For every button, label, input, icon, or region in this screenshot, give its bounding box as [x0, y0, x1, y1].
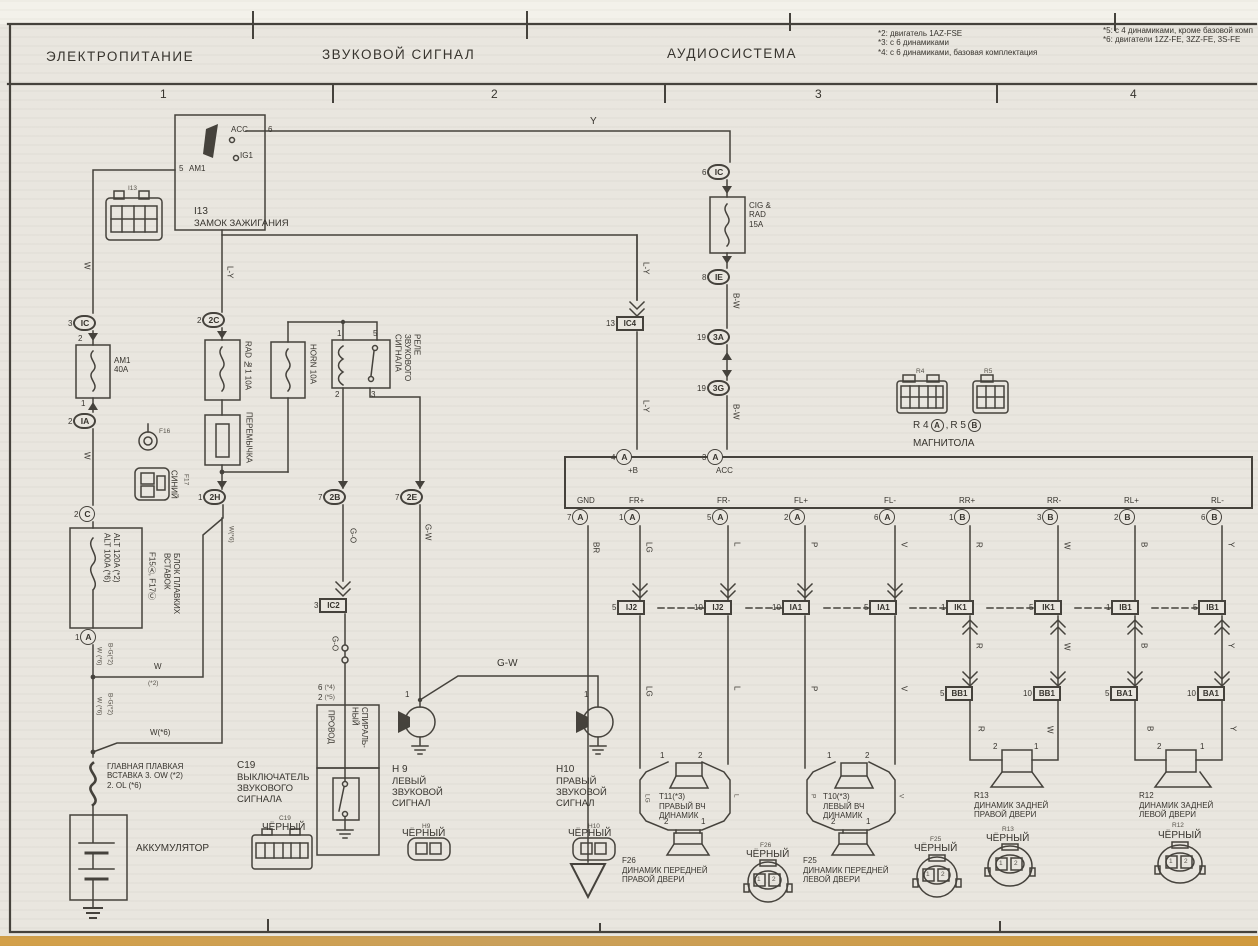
fuse-horn-label: HORN 10A [308, 344, 317, 384]
battery-icon [70, 815, 127, 908]
wire-label-r-1: R [974, 542, 983, 548]
connector-tag-i13: I13 [128, 185, 137, 193]
t11-wire-lg: LG [643, 794, 651, 803]
junction-ba1-5: 5BA1 [1105, 686, 1138, 701]
connector-ic2: 3IC2 [314, 598, 347, 613]
connector-ic-left: 3IC [68, 315, 96, 331]
wire-label-b-2: B [1139, 643, 1148, 648]
wire-label-n2-branch: (*2) [148, 680, 158, 688]
ignition-pin-5: 5 [179, 164, 183, 173]
wire-label-l-1: L [732, 542, 741, 546]
r13-pin-2: 2 [993, 742, 997, 751]
fuse-cig-rad-icon [710, 197, 745, 253]
wire-label-w2: W [82, 452, 91, 460]
speaker-rear-left-icon [1155, 750, 1211, 787]
connector-tag-r5: R5 [984, 368, 992, 376]
section-title-audio: АУДИОСИСТЕМА [667, 46, 797, 62]
page-bottom-edge [0, 936, 1258, 946]
ignition-pin-6: 6 [268, 125, 272, 134]
t11-pin-2: 2 [698, 751, 702, 760]
connector-tag-f16: F16 [159, 428, 170, 436]
fuse-pin-2: 2 [78, 334, 82, 343]
horn-h10-pin: 1 [584, 690, 588, 699]
r13-conn-pin2: 2 [1014, 860, 1018, 868]
wire-label-w-rr3: W [1045, 726, 1054, 734]
jumper-icon [205, 415, 240, 465]
wire-label-r-2: R [974, 643, 983, 649]
junction-ib1-5: 5IB1 [1193, 600, 1226, 615]
footnotes-right: *5: с 4 динамиками, кроме базовой комп *… [1103, 26, 1253, 45]
wire-label-w6-2h: W(*6) [227, 526, 235, 543]
r13-name: ДИНАМИК ЗАДНЕЙ ПРАВОЙ ДВЕРИ [974, 801, 1048, 820]
wire-label-l-2: L [732, 686, 741, 690]
section-title-power: ЭЛЕКТРОПИТАНИЕ [46, 49, 194, 65]
head-unit-box [565, 457, 1252, 508]
f25-conn-pin1: 1 [926, 871, 930, 879]
wire-label-v-1: V [899, 542, 908, 547]
f25-conn-pin2: 2 [941, 871, 945, 879]
spiral-wire-label-right: СПИРАЛЬ- НЫЙ [350, 707, 369, 748]
terminal-rlm-label: RL- [1211, 496, 1224, 505]
connector-f16-icon [139, 424, 157, 450]
wire-label-b-1: B [1139, 542, 1148, 547]
relay-pin-2: 2 [335, 390, 339, 399]
wire-label-r-3: R [976, 726, 985, 732]
terminal-frp-label: FR+ [629, 496, 644, 505]
ignition-switch-icon [175, 115, 265, 235]
connector-h10-icon [573, 838, 615, 860]
f26-name: ДИНАМИК ПЕРЕДНЕЙ ПРАВОЙ ДВЕРИ [622, 866, 708, 885]
terminal-frm-label: FR- [717, 496, 730, 505]
t11-id: T11(*3) [659, 792, 685, 801]
relay-pin-3: 3 [371, 390, 375, 399]
r13-pin-1: 1 [1034, 742, 1038, 751]
head-unit-name: МАГНИТОЛА [913, 438, 974, 450]
t10-wire-v: V [897, 794, 905, 798]
terminal-rrm: 3B [1037, 509, 1058, 525]
connector-r12-icon [1155, 842, 1205, 883]
wire-label-go-2: G-O [330, 636, 339, 651]
horn-left-icon [398, 707, 435, 754]
main-fusible-link-icon [90, 763, 95, 815]
speaker-rear-right-icon [991, 750, 1043, 787]
horn-switch-name: ВЫКЛЮЧАТЕЛЬ ЗВУКОВОГО СИГНАЛА [237, 772, 309, 806]
terminal-flm: 6A [874, 509, 895, 525]
wire-gw [420, 505, 598, 707]
connector-ia: 2IA [68, 413, 96, 429]
horn-h10-id: H10 [556, 764, 574, 776]
r12-conn-pin1: 1 [1169, 858, 1173, 866]
connector-c: 2C [74, 506, 95, 522]
r13-id: R13 [974, 791, 989, 800]
head-unit-connectors-label: R 4A , R 5B [913, 419, 981, 432]
terminal-rlm: 6B [1201, 509, 1222, 525]
junction-ij2-10: 10IJ2 [694, 600, 732, 615]
connector-tag-f17: F17 [182, 474, 190, 485]
fuse-rad-label: RAD №1 10A [243, 341, 252, 390]
wire-ly-left [222, 235, 637, 340]
junction-ia1-5: 5IA1 [864, 600, 897, 615]
junction-ij2-5: 5IJ2 [612, 600, 645, 615]
terminal-rrm-label: RR- [1047, 496, 1061, 505]
connector-2h: 12H [198, 489, 226, 505]
terminal-plus-b-label: +B [628, 466, 638, 475]
wire-label-lg-2: LG [644, 686, 653, 697]
wire-label-br: BR [591, 542, 600, 553]
connector-2b: 72B [318, 489, 346, 505]
connector-3a: 193A [697, 329, 730, 345]
connector-r13-icon [985, 844, 1035, 886]
terminal-frm: 5A [707, 509, 728, 525]
r12-pin-2: 2 [1157, 742, 1161, 751]
fusible-links-f15-f17: F15Ⓐ, F17Ⓒ [147, 552, 156, 600]
t10-name: ЛЕВЫЙ ВЧ ДИНАМИК [823, 802, 864, 821]
terminal-acc-label: ACC [716, 466, 733, 475]
wire-label-bg2-2: B-G(*2) [106, 693, 114, 715]
terminal-rlp-label: RL+ [1124, 496, 1139, 505]
horn-h10-name: ПРАВЫЙ ЗВУКОВОЙ СИГНАЛ [556, 776, 607, 810]
terminal-flp: 2A [784, 509, 805, 525]
junction-ik1-1: 1IK1 [941, 600, 974, 615]
wire-label-w-rr: W [1062, 542, 1071, 550]
f26-conn-pin1: 1 [757, 876, 761, 884]
t10-id: T10(*3) [823, 792, 850, 801]
t10-wire-p: P [809, 794, 817, 798]
connector-r13-color: ЧЁРНЫЙ [986, 833, 1029, 845]
wire-label-lg-1: LG [644, 542, 653, 553]
wire-label-bw-2: B-W [731, 404, 740, 420]
section-title-horn: ЗВУКОВОЙ СИГНАЛ [322, 47, 475, 63]
r12-id: R12 [1139, 791, 1154, 800]
wire-label-y-rl2: Y [1226, 643, 1235, 648]
wire-label-w6s-2: W (*6) [95, 697, 103, 715]
horn-right-icon [576, 707, 613, 754]
t10-pin-1: 1 [827, 751, 831, 760]
connector-i13-icon [106, 191, 162, 240]
main-fusible-link-label: ГЛАВНАЯ ПЛАВКАЯ ВСТАВКА 3. OW (*2) 2. OL… [107, 762, 183, 790]
connector-f17-icon [135, 468, 169, 500]
wire-label-ly-left: L-Y [225, 266, 234, 278]
connector-f25-color: ЧЁРНЫЙ [914, 843, 957, 855]
connector-r4-icon [897, 375, 947, 413]
wire-label-b-3: B [1145, 726, 1154, 731]
connector-c19-icon [252, 829, 312, 869]
wire-label-p-1: P [809, 542, 818, 547]
ignition-name: ЗАМОК ЗАЖИГАНИЯ [194, 218, 289, 229]
wire-label-ly-audio-2: L-Y [641, 400, 650, 412]
terminal-acc: 3A [702, 449, 723, 465]
connector-f25-icon [913, 855, 961, 897]
wire-label-gw-2: G-W [497, 658, 518, 670]
column-number-4: 4 [1130, 87, 1137, 101]
connector-f17-color: СИНИЙ [169, 470, 178, 499]
horn-h9-id: H 9 [392, 764, 408, 776]
wire-label-w6-branch: W(*6) [150, 728, 170, 737]
fuse-alt-label: ALT 120A (*2) ALT 100A (*6) [102, 533, 121, 583]
terminal-rrp: 1B [949, 509, 970, 525]
horn-relay-icon [332, 340, 390, 388]
r12-pin-1: 1 [1200, 742, 1204, 751]
fuse-pin-1: 1 [81, 399, 85, 408]
t10-pin-2: 2 [865, 751, 869, 760]
horn-h9-name: ЛЕВЫЙ ЗВУКОВОЙ СИГНАЛ [392, 776, 443, 810]
f25-name: ДИНАМИК ПЕРЕДНЕЙ ЛЕВОЙ ДВЕРИ [803, 866, 889, 885]
connector-f26-color: ЧЁРНЫЙ [746, 849, 789, 861]
wire-label-w-rr2: W [1062, 643, 1071, 651]
connector-tag-r4: R4 [916, 368, 924, 376]
terminal-flm-label: FL- [884, 496, 896, 505]
wire-label-v-2: V [899, 686, 908, 691]
junction-bb1-10: 10BB1 [1023, 686, 1061, 701]
wire-label-bw-1: B-W [731, 293, 740, 309]
r12-name: ДИНАМИК ЗАДНЕЙ ЛЕВОЙ ДВЕРИ [1139, 801, 1213, 820]
footnotes-left: *2: двигатель 1AZ-FSE *3: с 6 динамиками… [878, 29, 1037, 57]
terminal-gnd-label: GND [577, 496, 595, 505]
fuse-rad-icon [205, 340, 240, 415]
fuse-horn-icon [271, 322, 305, 472]
jumper-label: ПЕРЕМЫЧКА [244, 412, 253, 463]
terminal-flp-label: FL+ [794, 496, 808, 505]
connector-h10-color: ЧЁРНЫЙ [568, 828, 611, 840]
connector-h9-icon [408, 838, 450, 860]
wiring-diagram-page: ЭЛЕКТРОПИТАНИЕ ЗВУКОВОЙ СИГНАЛ АУДИОСИСТ… [0, 0, 1258, 946]
horn-switch-id: C19 [237, 760, 255, 772]
junction-bb1-5: 5BB1 [940, 686, 973, 701]
battery-label: АККУМУЛЯТОР [136, 843, 209, 855]
wire-y [265, 131, 730, 162]
connector-2e: 72E [395, 489, 423, 505]
wire-label-p-2: P [809, 686, 818, 691]
horn-relay-label: РЕЛЕ ЗВУКОВОГО СИГНАЛА [393, 334, 421, 381]
wire-label-w-branch: W [154, 662, 162, 671]
connector-f26-icon [744, 860, 792, 902]
fuse-cig-label: CIG & RAD 15A [749, 201, 771, 229]
junction-ib1-1: 1IB1 [1106, 600, 1139, 615]
connector-2c: 22C [197, 312, 225, 328]
t10-bot-pin-1: 1 [866, 817, 870, 826]
connector-ic4: 13IC4 [606, 316, 644, 331]
terminal-rlp: 2B [1114, 509, 1135, 525]
t11-wire-l: L [732, 794, 740, 798]
horn-switch-pin2: 2(*5) [318, 693, 335, 702]
wire-label-gw-1: G-W [423, 524, 432, 540]
ignition-id: I13 [194, 206, 208, 218]
junction-ik1-5: 5IK1 [1029, 600, 1062, 615]
wire-label-y-rl: Y [1226, 542, 1235, 547]
wire-label-ly-audio-1: L-Y [641, 262, 650, 274]
wire-label-y-rl3: Y [1228, 726, 1237, 731]
connector-tag-r12: R12 [1172, 822, 1184, 830]
column-number-1: 1 [160, 87, 167, 101]
connector-ic-audio: 6IC [702, 164, 730, 180]
relay-pin-1: 1 [337, 329, 341, 338]
wire-label-bg2-1: B-G(*2) [106, 643, 114, 665]
connector-c19-color: ЧЁРНЫЙ [262, 822, 305, 834]
connector-h9-color: ЧЁРНЫЙ [402, 828, 445, 840]
ignition-am1: AM1 [189, 164, 205, 173]
terminal-gnd: 7A [567, 509, 588, 525]
t10-bot-pin-2: 2 [831, 817, 835, 826]
r13-conn-pin1: 1 [999, 860, 1003, 868]
ignition-acc: ACC [231, 125, 248, 134]
fusible-link-block-label: БЛОК ПЛАВКИХ ВСТАВОК [162, 553, 181, 614]
ignition-ig1: IG1 [240, 151, 253, 160]
ground-battery-icon [84, 908, 102, 918]
junction-ia1-10: 10IA1 [772, 600, 810, 615]
wire-label-go-1: G-O [348, 528, 357, 543]
connector-r5-icon [973, 375, 1008, 413]
terminal-frp: 1A [619, 509, 640, 525]
terminal-rrp-label: RR+ [959, 496, 975, 505]
ground-audio-icon [571, 864, 605, 897]
connector-3g: 193G [697, 380, 730, 396]
f25-id: F25 [803, 856, 817, 865]
connector-r12-color: ЧЁРНЫЙ [1158, 830, 1201, 842]
connector-a: 1A [75, 629, 96, 645]
t11-bot-pin-2: 2 [664, 817, 668, 826]
column-number-3: 3 [815, 87, 822, 101]
column-number-2: 2 [491, 87, 498, 101]
connector-ie: 8IE [702, 269, 730, 285]
t11-bot-pin-1: 1 [701, 817, 705, 826]
spiral-wire-label-left: ПРОВОД [326, 710, 335, 744]
t11-pin-1: 1 [660, 751, 664, 760]
f26-id: F26 [622, 856, 636, 865]
r12-conn-pin2: 2 [1184, 858, 1188, 866]
wire-label-w1: W [82, 262, 91, 270]
fuse-am1-label: AM1 40A [114, 356, 130, 375]
f26-conn-pin2: 2 [772, 876, 776, 884]
relay-pin-5: 5 [373, 329, 377, 338]
junction-ba1-10: 10BA1 [1187, 686, 1225, 701]
horn-h9-pin: 1 [405, 690, 409, 699]
terminal-plus-b: 4A [611, 449, 632, 465]
wire-label-w6s-1: W (*6) [95, 647, 103, 665]
wire-label-y: Y [590, 116, 597, 128]
frame-lines [8, 24, 1256, 932]
horn-switch-pin6: 6(*4) [318, 683, 335, 692]
